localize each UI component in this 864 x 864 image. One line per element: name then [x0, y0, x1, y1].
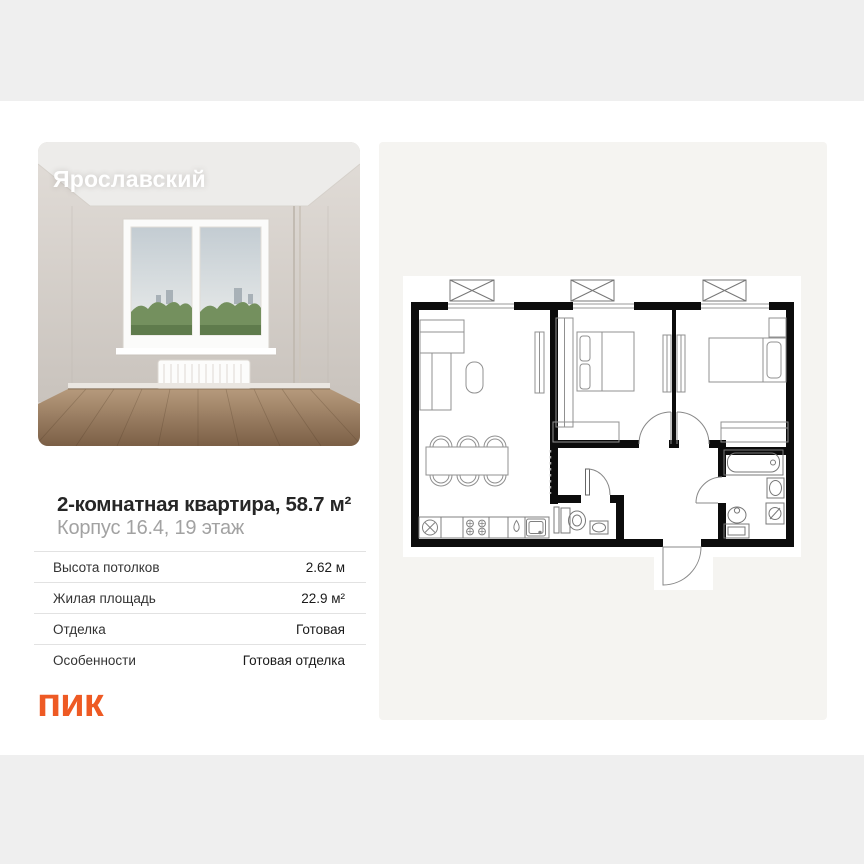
listing-title: 2-комнатная квартира, 58.7 м² [57, 493, 387, 517]
detail-label: Высота потолков [34, 560, 160, 575]
floor-plan [379, 142, 827, 720]
pik-logo[interactable]: пик [37, 683, 103, 723]
top-band [0, 0, 864, 101]
details-table: Высота потолков 2.62 м Жилая площадь 22.… [34, 551, 366, 675]
development-name-label: Ярославский [53, 166, 206, 193]
table-row: Отделка Готовая [34, 613, 366, 644]
apartment-photo-card[interactable]: Ярославский [38, 142, 360, 446]
table-row: Жилая площадь 22.9 м² [34, 582, 366, 613]
baseboard [68, 383, 330, 388]
detail-value: Готовая отделка [243, 653, 366, 668]
window [116, 219, 276, 355]
detail-value: 22.9 м² [301, 591, 366, 606]
bottom-band [0, 755, 864, 864]
detail-label: Отделка [34, 622, 106, 637]
listing-subtitle: Корпус 16.4, 19 этаж [57, 517, 387, 540]
detail-label: Особенности [34, 653, 136, 668]
table-row: Особенности Готовая отделка [34, 644, 366, 675]
table-row: Высота потолков 2.62 м [34, 551, 366, 582]
wood-floor [38, 389, 360, 446]
detail-value: 2.62 м [306, 560, 366, 575]
floor-plan-panel[interactable] [379, 142, 827, 720]
detail-label: Жилая площадь [34, 591, 156, 606]
detail-value: Готовая [296, 622, 366, 637]
